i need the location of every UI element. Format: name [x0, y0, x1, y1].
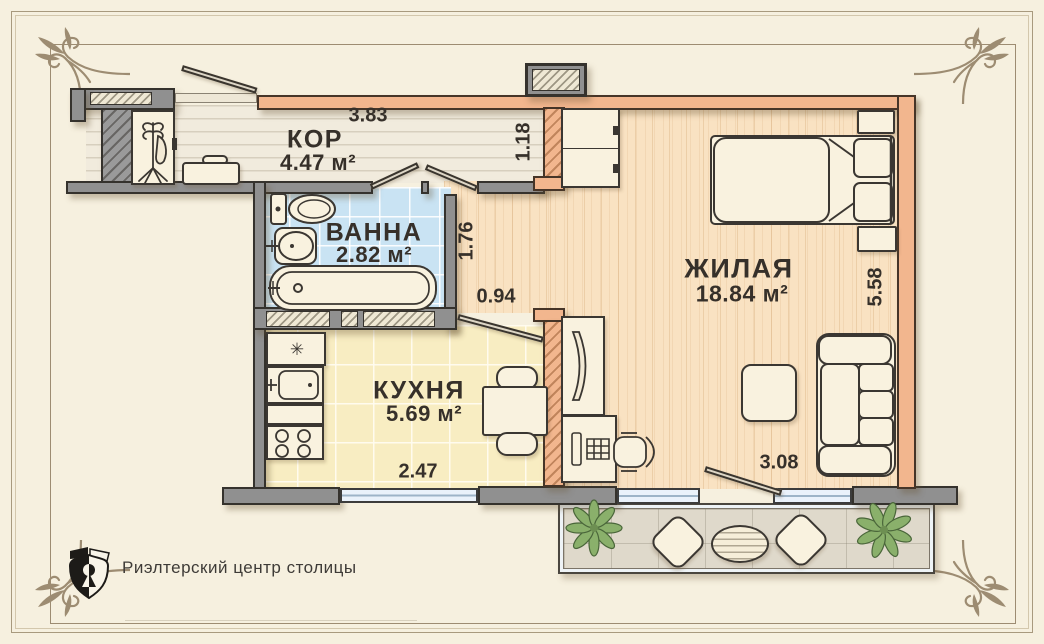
- balcony-table: [711, 525, 769, 563]
- balcony-window-left: [617, 488, 700, 504]
- computer-icon: [561, 415, 617, 483]
- corner-ornament-icon: [914, 26, 1010, 104]
- room-area-kitchen: 5.69 м²: [386, 401, 462, 427]
- potted-plant-icon: [852, 500, 916, 560]
- office-chair-icon: [613, 431, 663, 473]
- bathtub-icon: [268, 264, 438, 312]
- agency-shield-icon: [62, 544, 116, 600]
- left-outer-wall: [253, 181, 266, 491]
- nightstand: [857, 110, 895, 134]
- kitchen-table: [482, 386, 548, 436]
- dim-kitchen-width: 2.47: [399, 461, 438, 484]
- entrance-vent-box: [90, 92, 152, 105]
- coffee-table: [741, 364, 797, 422]
- kitchen-window: [340, 488, 478, 503]
- room-area-corridor: 4.47 м²: [280, 150, 356, 176]
- vent-shaft: [525, 63, 587, 97]
- tv-icon: [561, 316, 605, 416]
- nightstand: [857, 226, 897, 252]
- vent-shaft-grille: [532, 69, 580, 91]
- kitchen-counter: [266, 404, 324, 425]
- dim-corridor-width: 3.83: [349, 105, 388, 128]
- duct-box: [266, 311, 330, 327]
- kitchen-sink-icon: [266, 366, 324, 404]
- duct-box-small: [341, 311, 358, 327]
- right-load-bearing-wall: [897, 95, 916, 489]
- fridge-snowflake-icon: ✳: [290, 340, 304, 360]
- wardrobe: [561, 108, 620, 188]
- sink-icon: [266, 226, 318, 266]
- agency-name: Риэлтерский центр столицы: [122, 558, 357, 578]
- potted-plant-icon: [565, 499, 623, 557]
- dim-living-width: 3.08: [760, 452, 799, 475]
- floor-plan-canvas: ✳: [0, 0, 1044, 644]
- kitchen-chair: [496, 432, 538, 456]
- sofa: [816, 333, 897, 477]
- entrance-threshold: [175, 93, 257, 103]
- room-area-living: 18.84 м²: [696, 281, 789, 308]
- logo-underline: [125, 620, 417, 621]
- wardrobe-handle: [613, 164, 618, 173]
- stove-burners-icon: [266, 425, 324, 460]
- entrance-side-wall: [101, 108, 133, 184]
- double-bed: [710, 135, 895, 225]
- entrance-wall-flange: [70, 88, 86, 122]
- closet-handle: [172, 138, 177, 150]
- dim-hall-depth: 1.76: [456, 222, 479, 261]
- dim-living-length: 5.58: [865, 268, 888, 307]
- door-jamb: [421, 181, 429, 194]
- corridor-cabinet: [182, 162, 240, 185]
- duct-box: [363, 311, 435, 327]
- kitchen-bottom-wall-left: [222, 487, 340, 505]
- balcony-window-right: [773, 488, 852, 504]
- dim-kitchen-door: 0.94: [477, 286, 516, 309]
- room-area-bathroom: 2.82 м²: [336, 242, 412, 268]
- dim-corridor-depth: 1.18: [513, 123, 536, 162]
- coat-rack-icon: [131, 110, 175, 185]
- wardrobe-handle: [613, 126, 618, 135]
